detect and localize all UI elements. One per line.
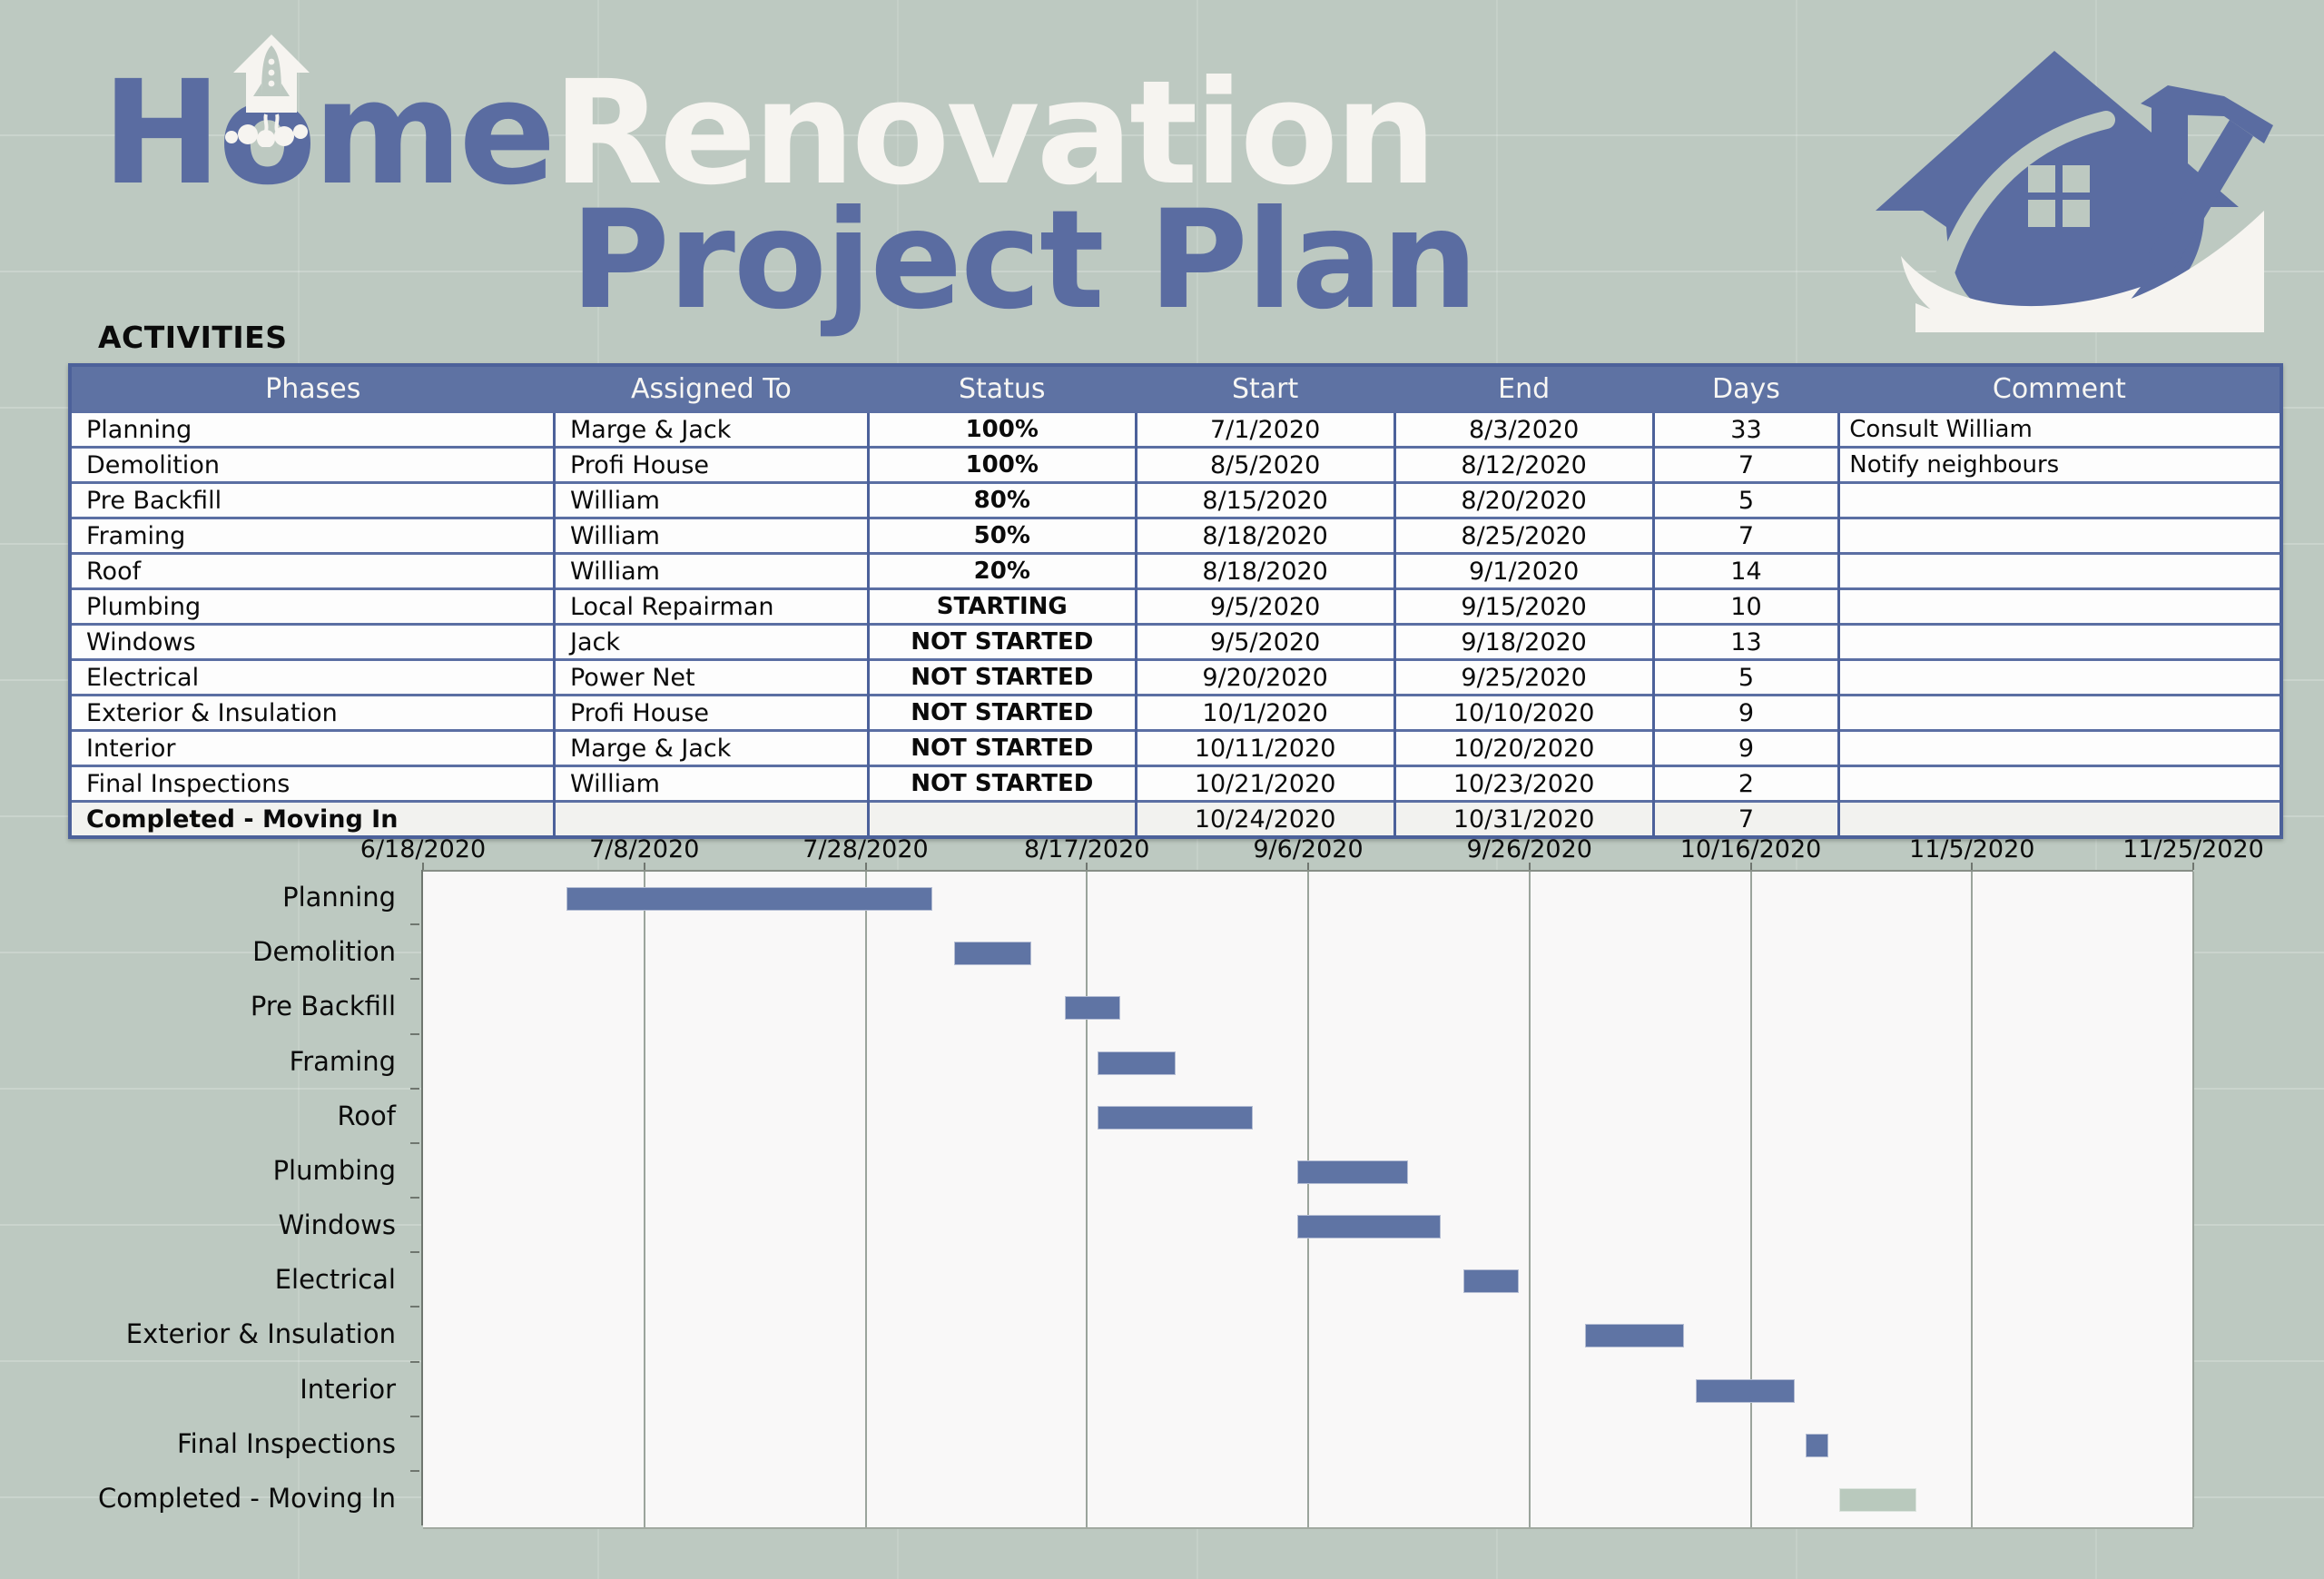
activities-table-body: PlanningMarge & Jack100%7/1/20208/3/2020… [70,412,2281,838]
table-row: Final InspectionsWilliamNOT STARTED10/21… [70,766,2281,802]
table-row: PlumbingLocal RepairmanSTARTING9/5/20209… [70,589,2281,625]
gridline [1307,872,1309,1527]
gantt-row-tick-mark [410,1416,419,1417]
cell-days: 9 [1653,696,1839,731]
gantt-row-tick-mark [410,1306,419,1308]
table-row: Exterior & InsulationProfi HouseNOT STAR… [70,696,2281,731]
page-title-line2: Project Plan [570,192,1476,329]
gantt-bar-demolition [954,942,1031,965]
cell-status: NOT STARTED [868,625,1136,660]
gantt-row-label: Framing [0,1034,409,1089]
activities-table: PhasesAssigned ToStatusStartEndDaysComme… [68,363,2283,839]
gantt-axis-tick-label: 7/28/2020 [803,835,928,864]
gantt-row-label: Pre Backfill [0,979,409,1033]
gridline [644,872,645,1527]
gridline [1971,872,1973,1527]
cell-assigned: Marge & Jack [554,731,868,766]
house-hammer-logo [1868,33,2277,332]
table-row: FramingWilliam50%8/18/20208/25/20207 [70,518,2281,554]
cell-start: 9/5/2020 [1136,589,1394,625]
cell-comment [1839,660,2281,696]
cell-days: 9 [1653,731,1839,766]
cell-comment [1839,518,2281,554]
page: HomeRenovation Project Plan [0,0,2324,1579]
gantt-bar-plumbing [1297,1160,1408,1184]
cell-start: 10/21/2020 [1136,766,1394,802]
cell-comment [1839,766,2281,802]
cell-start: 10/24/2020 [1136,802,1394,838]
gantt-axis-tick-label: 10/16/2020 [1680,835,1822,864]
cell-phase: Electrical [70,660,554,696]
gantt-axis-tick-label: 11/25/2020 [2122,835,2264,864]
cell-end: 10/23/2020 [1394,766,1653,802]
gantt-axis-tick-mark [1307,863,1309,870]
gantt-row-label: Exterior & Insulation [0,1307,409,1361]
cell-comment [1839,625,2281,660]
cell-assigned: William [554,766,868,802]
column-header-phases: Phases [70,365,554,412]
cell-start: 8/15/2020 [1136,483,1394,518]
table-row: InteriorMarge & JackNOT STARTED10/11/202… [70,731,2281,766]
cell-end: 9/25/2020 [1394,660,1653,696]
column-header-comment: Comment [1839,365,2281,412]
cell-days: 7 [1653,518,1839,554]
gridline [1086,872,1088,1527]
cell-phase: Interior [70,731,554,766]
gantt-axis-tick-mark [644,863,645,870]
cell-days: 5 [1653,660,1839,696]
cell-end: 9/1/2020 [1394,554,1653,589]
cell-phase: Pre Backfill [70,483,554,518]
gantt-bar-windows [1297,1215,1441,1239]
cell-days: 10 [1653,589,1839,625]
gantt-bar-roof [1098,1106,1253,1130]
cell-phase: Demolition [70,448,554,483]
gridline [2192,872,2194,1527]
cell-assigned: Profi House [554,448,868,483]
gantt-axis-tick-mark [1971,863,1973,870]
gantt-row-label: Electrical [0,1252,409,1307]
cell-comment [1839,802,2281,838]
cell-end: 10/10/2020 [1394,696,1653,731]
cell-phase: Final Inspections [70,766,554,802]
gantt-row-label: Demolition [0,924,409,979]
gantt-row-label: Completed - Moving In [0,1471,409,1525]
gantt-row-tick-mark [410,1033,419,1035]
cell-status: STARTING [868,589,1136,625]
cell-start: 8/18/2020 [1136,554,1394,589]
gantt-axis-tick-label: 11/5/2020 [1909,835,2034,864]
gantt-row-label: Final Inspections [0,1416,409,1471]
gantt-row-tick-mark [410,1197,419,1199]
gantt-row-label: Interior [0,1362,409,1416]
column-header-status: Status [868,365,1136,412]
table-header-row: PhasesAssigned ToStatusStartEndDaysComme… [70,365,2281,412]
gantt-row-tick-mark [410,1088,419,1090]
gantt-row-label: Windows [0,1198,409,1252]
cell-status: 100% [868,448,1136,483]
cell-end: 10/31/2020 [1394,802,1653,838]
gantt-row-label: Plumbing [0,1143,409,1198]
cell-comment: Notify neighbours [1839,448,2281,483]
gantt-row-tick-mark [410,1251,419,1253]
cell-phase: Roof [70,554,554,589]
table-row: ElectricalPower NetNOT STARTED9/20/20209… [70,660,2281,696]
cell-phase: Plumbing [70,589,554,625]
cell-comment [1839,483,2281,518]
cell-start: 7/1/2020 [1136,412,1394,448]
cell-status: NOT STARTED [868,731,1136,766]
cell-start: 8/18/2020 [1136,518,1394,554]
cell-assigned: William [554,483,868,518]
gantt-bar-final-inspections [1806,1434,1827,1457]
title-word-home: Home [102,50,553,217]
cell-assigned: William [554,554,868,589]
gantt-bar-interior [1696,1379,1796,1403]
cell-comment: Consult William [1839,412,2281,448]
gantt-row-tick-mark [410,1470,419,1472]
gantt-bar-planning [566,887,931,911]
cell-comment [1839,731,2281,766]
gantt-bar-pre-backfill [1065,996,1120,1020]
cell-phase: Completed - Moving In [70,802,554,838]
gantt-row-tick-mark [410,1142,419,1144]
cell-days: 2 [1653,766,1839,802]
gantt-axis-tick-mark [865,863,867,870]
cell-phase: Planning [70,412,554,448]
cell-days: 5 [1653,483,1839,518]
table-row: DemolitionProfi House100%8/5/20208/12/20… [70,448,2281,483]
gridline [865,872,867,1527]
cell-days: 33 [1653,412,1839,448]
cell-assigned: Profi House [554,696,868,731]
gantt-bar-electrical [1463,1269,1519,1293]
cell-end: 10/20/2020 [1394,731,1653,766]
gantt-row-tick-mark [410,978,419,980]
cell-days: 14 [1653,554,1839,589]
cell-status [868,802,1136,838]
cell-start: 10/1/2020 [1136,696,1394,731]
cell-status: NOT STARTED [868,660,1136,696]
gantt-row-label: Roof [0,1089,409,1143]
cell-assigned: William [554,518,868,554]
cell-end: 9/18/2020 [1394,625,1653,660]
gantt-axis-tick-label: 9/6/2020 [1253,835,1363,864]
cell-comment [1839,554,2281,589]
gantt-row-tick-mark [410,1361,419,1363]
column-header-end: End [1394,365,1653,412]
gantt-axis-tick-mark [422,863,424,870]
gantt-bar-framing [1098,1051,1175,1075]
cell-assigned: Power Net [554,660,868,696]
cell-end: 8/12/2020 [1394,448,1653,483]
cell-days: 7 [1653,448,1839,483]
cell-phase: Windows [70,625,554,660]
column-header-days: Days [1653,365,1839,412]
table-row: Completed - Moving In10/24/202010/31/202… [70,802,2281,838]
table-row: WindowsJackNOT STARTED9/5/20209/18/20201… [70,625,2281,660]
gantt-bar-exterior-insulation [1585,1324,1685,1347]
gantt-axis-tick-mark [1086,863,1088,870]
gantt-axis-tick-label: 9/26/2020 [1467,835,1592,864]
activities-heading: ACTIVITIES [98,320,287,355]
cell-status: 100% [868,412,1136,448]
gantt-row-label: Planning [0,870,409,924]
gantt-axis-tick-mark [1750,863,1752,870]
gantt-axis-tick-label: 8/17/2020 [1024,835,1149,864]
rocket-house-icon [221,24,322,147]
cell-assigned [554,802,868,838]
cell-start: 10/11/2020 [1136,731,1394,766]
cell-days: 7 [1653,802,1839,838]
gantt-axis-tick-label: 6/18/2020 [360,835,486,864]
gantt-row-tick-mark [410,923,419,925]
cell-start: 8/5/2020 [1136,448,1394,483]
cell-status: 50% [868,518,1136,554]
cell-end: 8/20/2020 [1394,483,1653,518]
gantt-axis-tick-label: 7/8/2020 [589,835,699,864]
cell-end: 8/3/2020 [1394,412,1653,448]
cell-status: NOT STARTED [868,766,1136,802]
gantt-axis-tick-mark [2192,863,2194,870]
cell-assigned: Jack [554,625,868,660]
gantt-bar-completed-moving-in [1839,1488,1916,1512]
gantt-axis-tick-mark [1529,863,1531,870]
gridline [1750,872,1752,1527]
cell-comment [1839,589,2281,625]
cell-days: 13 [1653,625,1839,660]
gridline [1529,872,1531,1527]
cell-comment [1839,696,2281,731]
cell-phase: Framing [70,518,554,554]
cell-end: 9/15/2020 [1394,589,1653,625]
cell-start: 9/20/2020 [1136,660,1394,696]
cell-end: 8/25/2020 [1394,518,1653,554]
cell-phase: Exterior & Insulation [70,696,554,731]
column-header-assigned-to: Assigned To [554,365,868,412]
cell-assigned: Local Repairman [554,589,868,625]
cell-status: NOT STARTED [868,696,1136,731]
cell-assigned: Marge & Jack [554,412,868,448]
table-row: RoofWilliam20%8/18/20209/1/202014 [70,554,2281,589]
cell-status: 20% [868,554,1136,589]
cell-start: 9/5/2020 [1136,625,1394,660]
column-header-start: Start [1136,365,1394,412]
gantt-plot-area [423,870,2193,1529]
table-row: Pre BackfillWilliam80%8/15/20208/20/2020… [70,483,2281,518]
cell-status: 80% [868,483,1136,518]
table-row: PlanningMarge & Jack100%7/1/20208/3/2020… [70,412,2281,448]
